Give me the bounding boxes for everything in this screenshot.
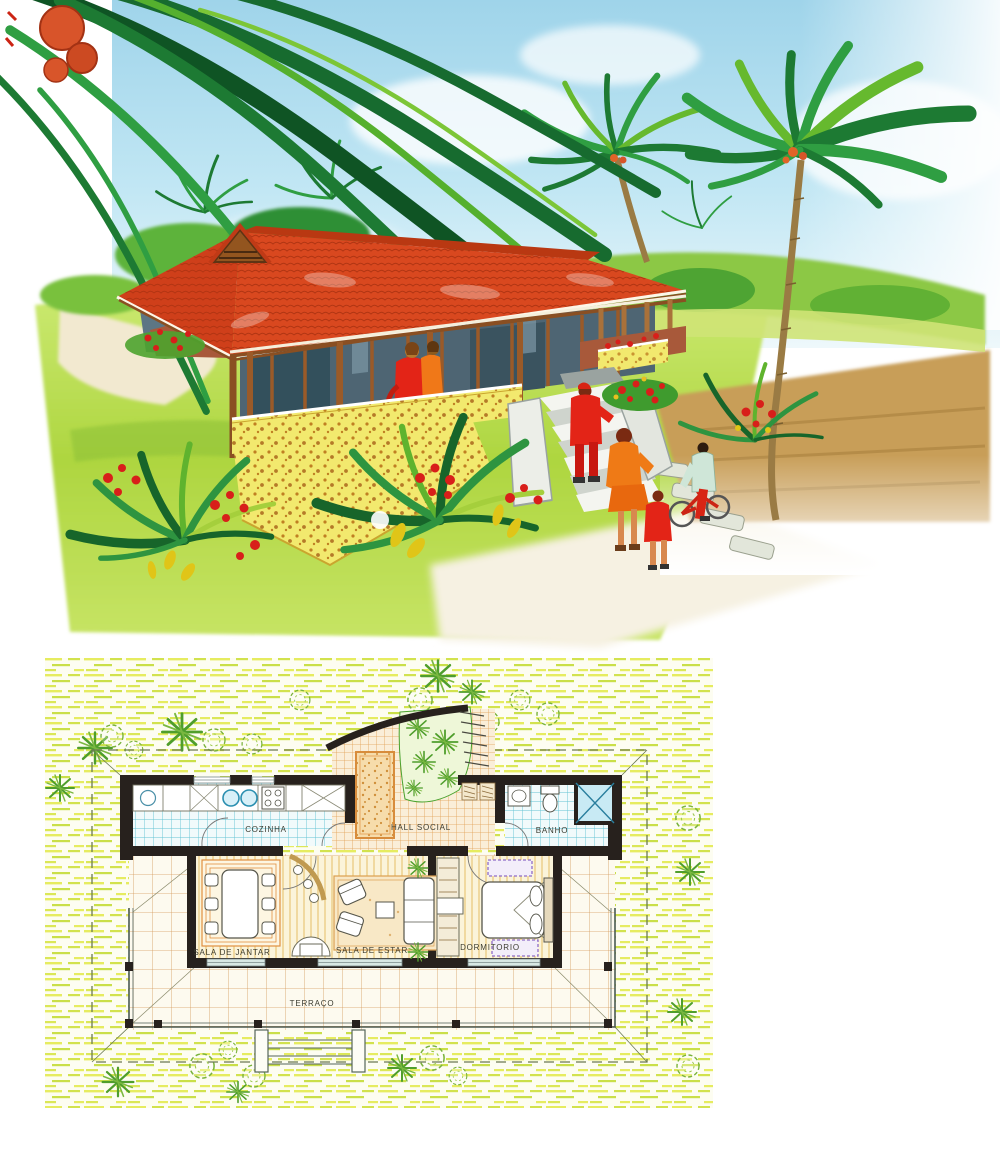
toilet-bowl (543, 794, 557, 812)
sink-bowl (223, 790, 239, 806)
red-mark (6, 38, 13, 46)
scanned-page: COZINHA HALL SOCIAL BANHO SALA DE JANTAR… (0, 0, 1000, 1167)
room-label-bedroom: DORMITORIO (460, 943, 520, 952)
sink-bowl (241, 790, 257, 806)
kitchen-fixtures (133, 785, 345, 811)
stove (262, 787, 284, 809)
room-label-living: SALA DE ESTAR (336, 946, 408, 955)
potted-plant (408, 859, 428, 877)
room-label-hall: HALL SOCIAL (391, 823, 451, 832)
potted-plant (408, 943, 428, 961)
room-label-dining: SALA DE JANTAR (193, 948, 270, 957)
perspective-illustration (0, 0, 1000, 648)
room-label-bath: BANHO (536, 826, 568, 835)
dressing-table (437, 898, 463, 914)
room-label-kitchen: COZINHA (245, 825, 287, 834)
floor-plan: COZINHA HALL SOCIAL BANHO SALA DE JANTAR… (45, 658, 713, 1108)
headboard (544, 878, 553, 942)
entry-rug (356, 752, 394, 838)
toilet-tank (541, 786, 559, 794)
room-label-terrace: TERRAÇO (290, 999, 335, 1008)
pillow (530, 914, 542, 934)
bath-sink (508, 786, 530, 806)
red-mark (8, 12, 16, 20)
dining-table (222, 870, 258, 938)
pillow (530, 886, 542, 906)
coffee-table (376, 902, 394, 918)
sofa (404, 878, 434, 944)
artwork: COZINHA HALL SOCIAL BANHO SALA DE JANTAR… (0, 0, 1000, 1167)
bedroom-rug (488, 860, 532, 876)
dining-room (202, 860, 280, 946)
